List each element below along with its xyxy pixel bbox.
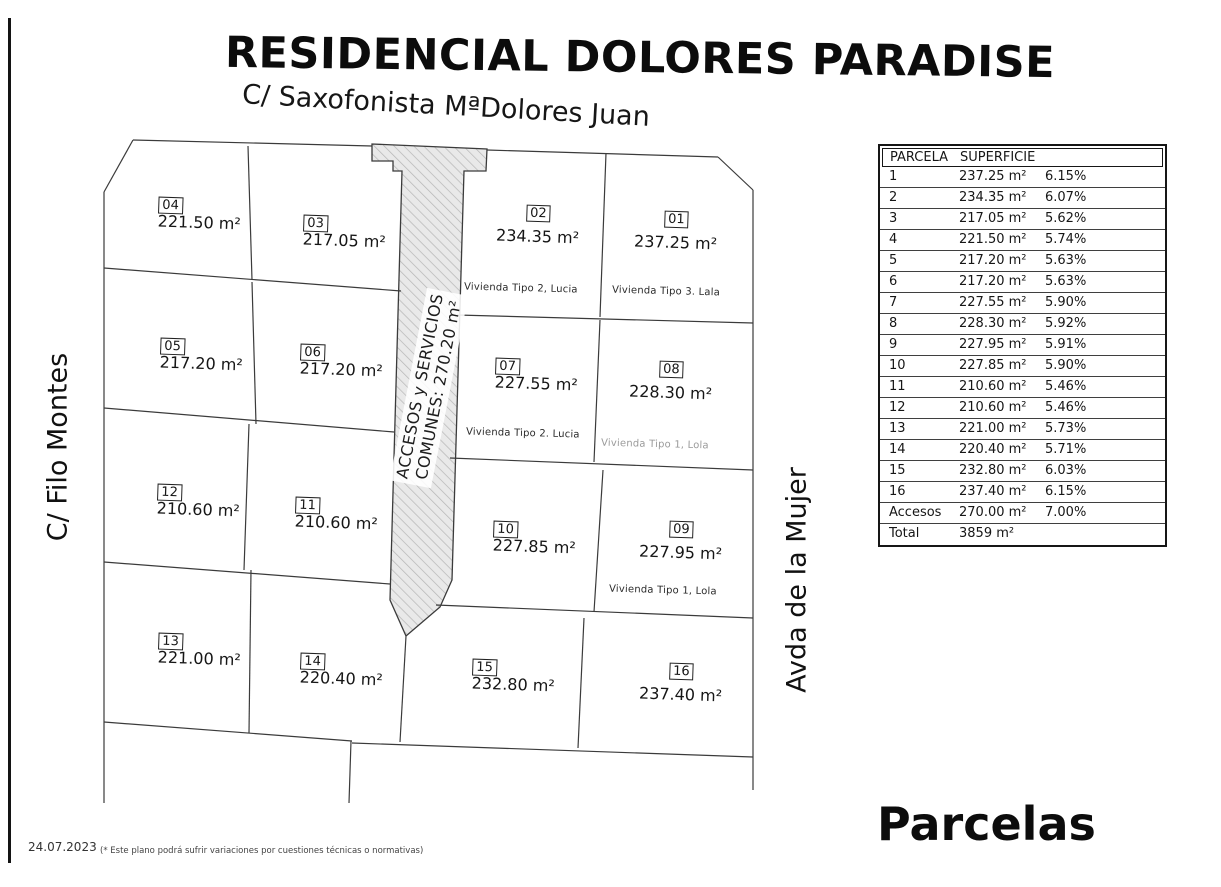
parcel-area: 210.60 m²	[294, 513, 378, 533]
table-row: 6 217.20 m² 5.63%	[880, 272, 1165, 293]
parcel-number: 02	[526, 205, 551, 223]
street-label-left: C/ Filo Montes	[43, 353, 74, 541]
table-row: 4 221.50 m² 5.74%	[880, 230, 1165, 251]
cell-percent: 5.63%	[1045, 251, 1086, 271]
table-row: 12 210.60 m² 5.46%	[880, 398, 1165, 419]
table-row: 16 237.40 m² 6.15%	[880, 482, 1165, 503]
header-superficie: SUPERFICIE	[960, 149, 1035, 166]
cell-percent: 5.73%	[1045, 419, 1086, 439]
cell-percent: 5.62%	[1045, 209, 1086, 229]
cell-superficie: 227.55 m²	[959, 293, 1045, 313]
cell-percent: 6.15%	[1045, 482, 1086, 502]
parcel-label-14: 14 220.40 m²	[299, 653, 383, 689]
parcel-label-02: 02 234.35 m²	[497, 204, 578, 247]
table-row: 13 221.00 m² 5.73%	[880, 419, 1165, 440]
parcel-area: 217.20 m²	[299, 360, 383, 380]
cell-percent: 5.71%	[1045, 440, 1086, 460]
header-parcela: PARCELA	[890, 149, 960, 166]
cell-parcela: 4	[889, 230, 959, 250]
table-row: 2 234.35 m² 6.07%	[880, 188, 1165, 209]
cell-percent: 6.07%	[1045, 188, 1086, 208]
cell-superficie: 210.60 m²	[959, 398, 1045, 418]
parcel-label-09: 09 227.95 m²	[640, 520, 721, 563]
cell-superficie: 217.20 m²	[959, 272, 1045, 292]
cell-parcela: Total	[889, 524, 959, 545]
cell-parcela: 5	[889, 251, 959, 271]
table-row: 14 220.40 m² 5.71%	[880, 440, 1165, 461]
street-label-right: Avda de la Mujer	[782, 467, 813, 693]
cell-percent: 5.90%	[1045, 293, 1086, 313]
cell-superficie: 270.00 m²	[959, 503, 1045, 523]
cell-percent: 5.91%	[1045, 335, 1086, 355]
table-row: 8 228.30 m² 5.92%	[880, 314, 1165, 335]
cell-parcela: 13	[889, 419, 959, 439]
parcel-area: 227.95 m²	[639, 543, 723, 563]
table-row: 7 227.55 m² 5.90%	[880, 293, 1165, 314]
cell-superficie: 217.20 m²	[959, 251, 1045, 271]
table-row: 5 217.20 m² 5.63%	[880, 251, 1165, 272]
plan-caption: Parcelas	[877, 797, 1096, 851]
table-row: 9 227.95 m² 5.91%	[880, 335, 1165, 356]
surface-table-header: PARCELA SUPERFICIE	[882, 148, 1163, 167]
parcel-label-12: 12 210.60 m²	[156, 484, 240, 520]
cell-superficie: 3859 m²	[959, 524, 1045, 545]
cell-parcela: 14	[889, 440, 959, 460]
cell-percent: 5.74%	[1045, 230, 1086, 250]
parcel-number: 16	[669, 663, 694, 681]
parcel-label-10: 10 227.85 m²	[492, 521, 576, 557]
table-row-total: Total 3859 m²	[880, 524, 1165, 545]
cell-percent: 5.46%	[1045, 398, 1086, 418]
cell-percent: 5.46%	[1045, 377, 1086, 397]
cell-parcela: 10	[889, 356, 959, 376]
cell-parcela: 1	[889, 167, 959, 187]
cell-superficie: 234.35 m²	[959, 188, 1045, 208]
table-row: 3 217.05 m² 5.62%	[880, 209, 1165, 230]
parcel-area: 237.40 m²	[639, 685, 723, 705]
parcel-number: 09	[669, 521, 694, 539]
parcel-area: 227.85 m²	[492, 537, 576, 557]
cell-superficie: 227.95 m²	[959, 335, 1045, 355]
cell-percent: 6.15%	[1045, 167, 1086, 187]
table-row: 11 210.60 m² 5.46%	[880, 377, 1165, 398]
parcel-area: 228.30 m²	[629, 383, 713, 403]
cell-percent: 5.63%	[1045, 272, 1086, 292]
parcel-label-07: 07 227.55 m²	[494, 358, 578, 394]
parcel-area: 220.40 m²	[299, 669, 383, 689]
parcel-label-06: 06 217.20 m²	[299, 344, 383, 380]
cell-parcela: 11	[889, 377, 959, 397]
parcel-label-08: 08 228.30 m²	[630, 360, 711, 403]
cell-parcela: 16	[889, 482, 959, 502]
parcel-label-16: 16 237.40 m²	[640, 662, 721, 705]
table-row: 1 237.25 m² 6.15%	[880, 167, 1165, 188]
cell-parcela: 6	[889, 272, 959, 292]
parcel-area: 217.05 m²	[302, 231, 386, 251]
cell-superficie: 221.50 m²	[959, 230, 1045, 250]
cell-superficie: 210.60 m²	[959, 377, 1045, 397]
cell-percent: 5.90%	[1045, 356, 1086, 376]
parcel-area: 234.35 m²	[496, 227, 580, 247]
cell-parcela: Accesos	[889, 503, 959, 523]
cell-parcela: 15	[889, 461, 959, 481]
cell-superficie: 228.30 m²	[959, 314, 1045, 334]
cell-percent: 7.00%	[1045, 503, 1086, 523]
parcel-area: 227.55 m²	[494, 374, 578, 394]
parcel-area: 237.25 m²	[634, 233, 718, 253]
parcel-label-13: 13 221.00 m²	[157, 633, 241, 669]
plan-date: 24.07.2023	[28, 840, 97, 854]
parcel-area: 221.00 m²	[157, 649, 241, 669]
cell-parcela: 8	[889, 314, 959, 334]
cell-parcela: 3	[889, 209, 959, 229]
cell-parcela: 9	[889, 335, 959, 355]
cell-parcela: 2	[889, 188, 959, 208]
parcel-label-05: 05 217.20 m²	[159, 338, 243, 374]
parcel-number: 01	[664, 211, 689, 229]
parcel-label-01: 01 237.25 m²	[635, 210, 716, 253]
parcel-label-04: 04 221.50 m²	[157, 197, 241, 233]
cell-percent: 5.92%	[1045, 314, 1086, 334]
surface-table: PARCELA SUPERFICIE 1 237.25 m² 6.15% 2 2…	[878, 144, 1167, 547]
parcel-number: 08	[659, 361, 684, 379]
cell-parcela: 12	[889, 398, 959, 418]
cell-superficie: 221.00 m²	[959, 419, 1045, 439]
table-row: 15 232.80 m² 6.03%	[880, 461, 1165, 482]
cell-percent: 6.03%	[1045, 461, 1086, 481]
table-row: 10 227.85 m² 5.90%	[880, 356, 1165, 377]
parcel-area: 210.60 m²	[156, 500, 240, 520]
table-row-accesos: Accesos 270.00 m² 7.00%	[880, 503, 1165, 524]
parcel-area: 232.80 m²	[471, 675, 555, 695]
parcel-label-03: 03 217.05 m²	[302, 215, 386, 251]
cell-superficie: 227.85 m²	[959, 356, 1045, 376]
plan-footnote: (* Este plano podrá sufrir variaciones p…	[100, 846, 423, 856]
parcel-label-15: 15 232.80 m²	[471, 659, 555, 695]
cell-superficie: 232.80 m²	[959, 461, 1045, 481]
cell-superficie: 237.40 m²	[959, 482, 1045, 502]
cell-superficie: 237.25 m²	[959, 167, 1045, 187]
cell-parcela: 7	[889, 293, 959, 313]
parcel-area: 221.50 m²	[157, 213, 241, 233]
cell-superficie: 220.40 m²	[959, 440, 1045, 460]
parcel-area: 217.20 m²	[159, 354, 243, 374]
parcel-label-11: 11 210.60 m²	[294, 497, 378, 533]
cell-superficie: 217.05 m²	[959, 209, 1045, 229]
